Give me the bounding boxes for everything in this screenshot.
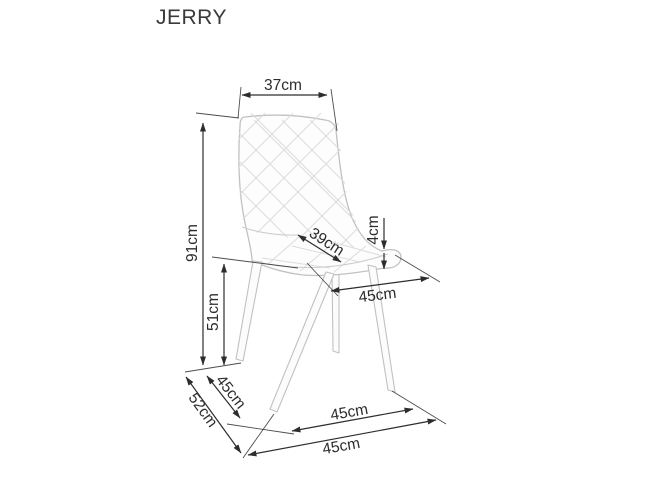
chair-dimension-drawing: 37cm 91cm 51cm 39cm 4cm 45cm 52cm 45cm 4…: [0, 0, 648, 486]
label-cushion-thickness: 4cm: [365, 215, 382, 244]
dimension-diagram-page: JERRY: [0, 0, 648, 486]
label-total-height: 91cm: [184, 224, 201, 262]
chair-front-right-leg: [270, 272, 334, 412]
chair-drawing: [90, 80, 470, 412]
chair-front-left-leg: [236, 261, 262, 361]
ext-floor-left: [185, 363, 241, 372]
chair-backrest-and-seat: [239, 115, 401, 275]
ext-backrest-width-left: [238, 87, 241, 118]
label-footprint-side-right: 45cm: [329, 401, 369, 424]
label-seat-width: 45cm: [358, 285, 398, 306]
label-seat-height: 51cm: [205, 293, 222, 331]
label-backrest-width: 37cm: [264, 77, 302, 94]
label-overall-depth: 52cm: [185, 390, 221, 431]
label-overall-width: 45cm: [321, 435, 361, 458]
chair-rear-left-leg: [332, 268, 339, 353]
ext-total-height-top: [196, 113, 239, 118]
ext-seat-width-right: [395, 255, 440, 282]
ext-rear-foot-right: [392, 391, 446, 424]
